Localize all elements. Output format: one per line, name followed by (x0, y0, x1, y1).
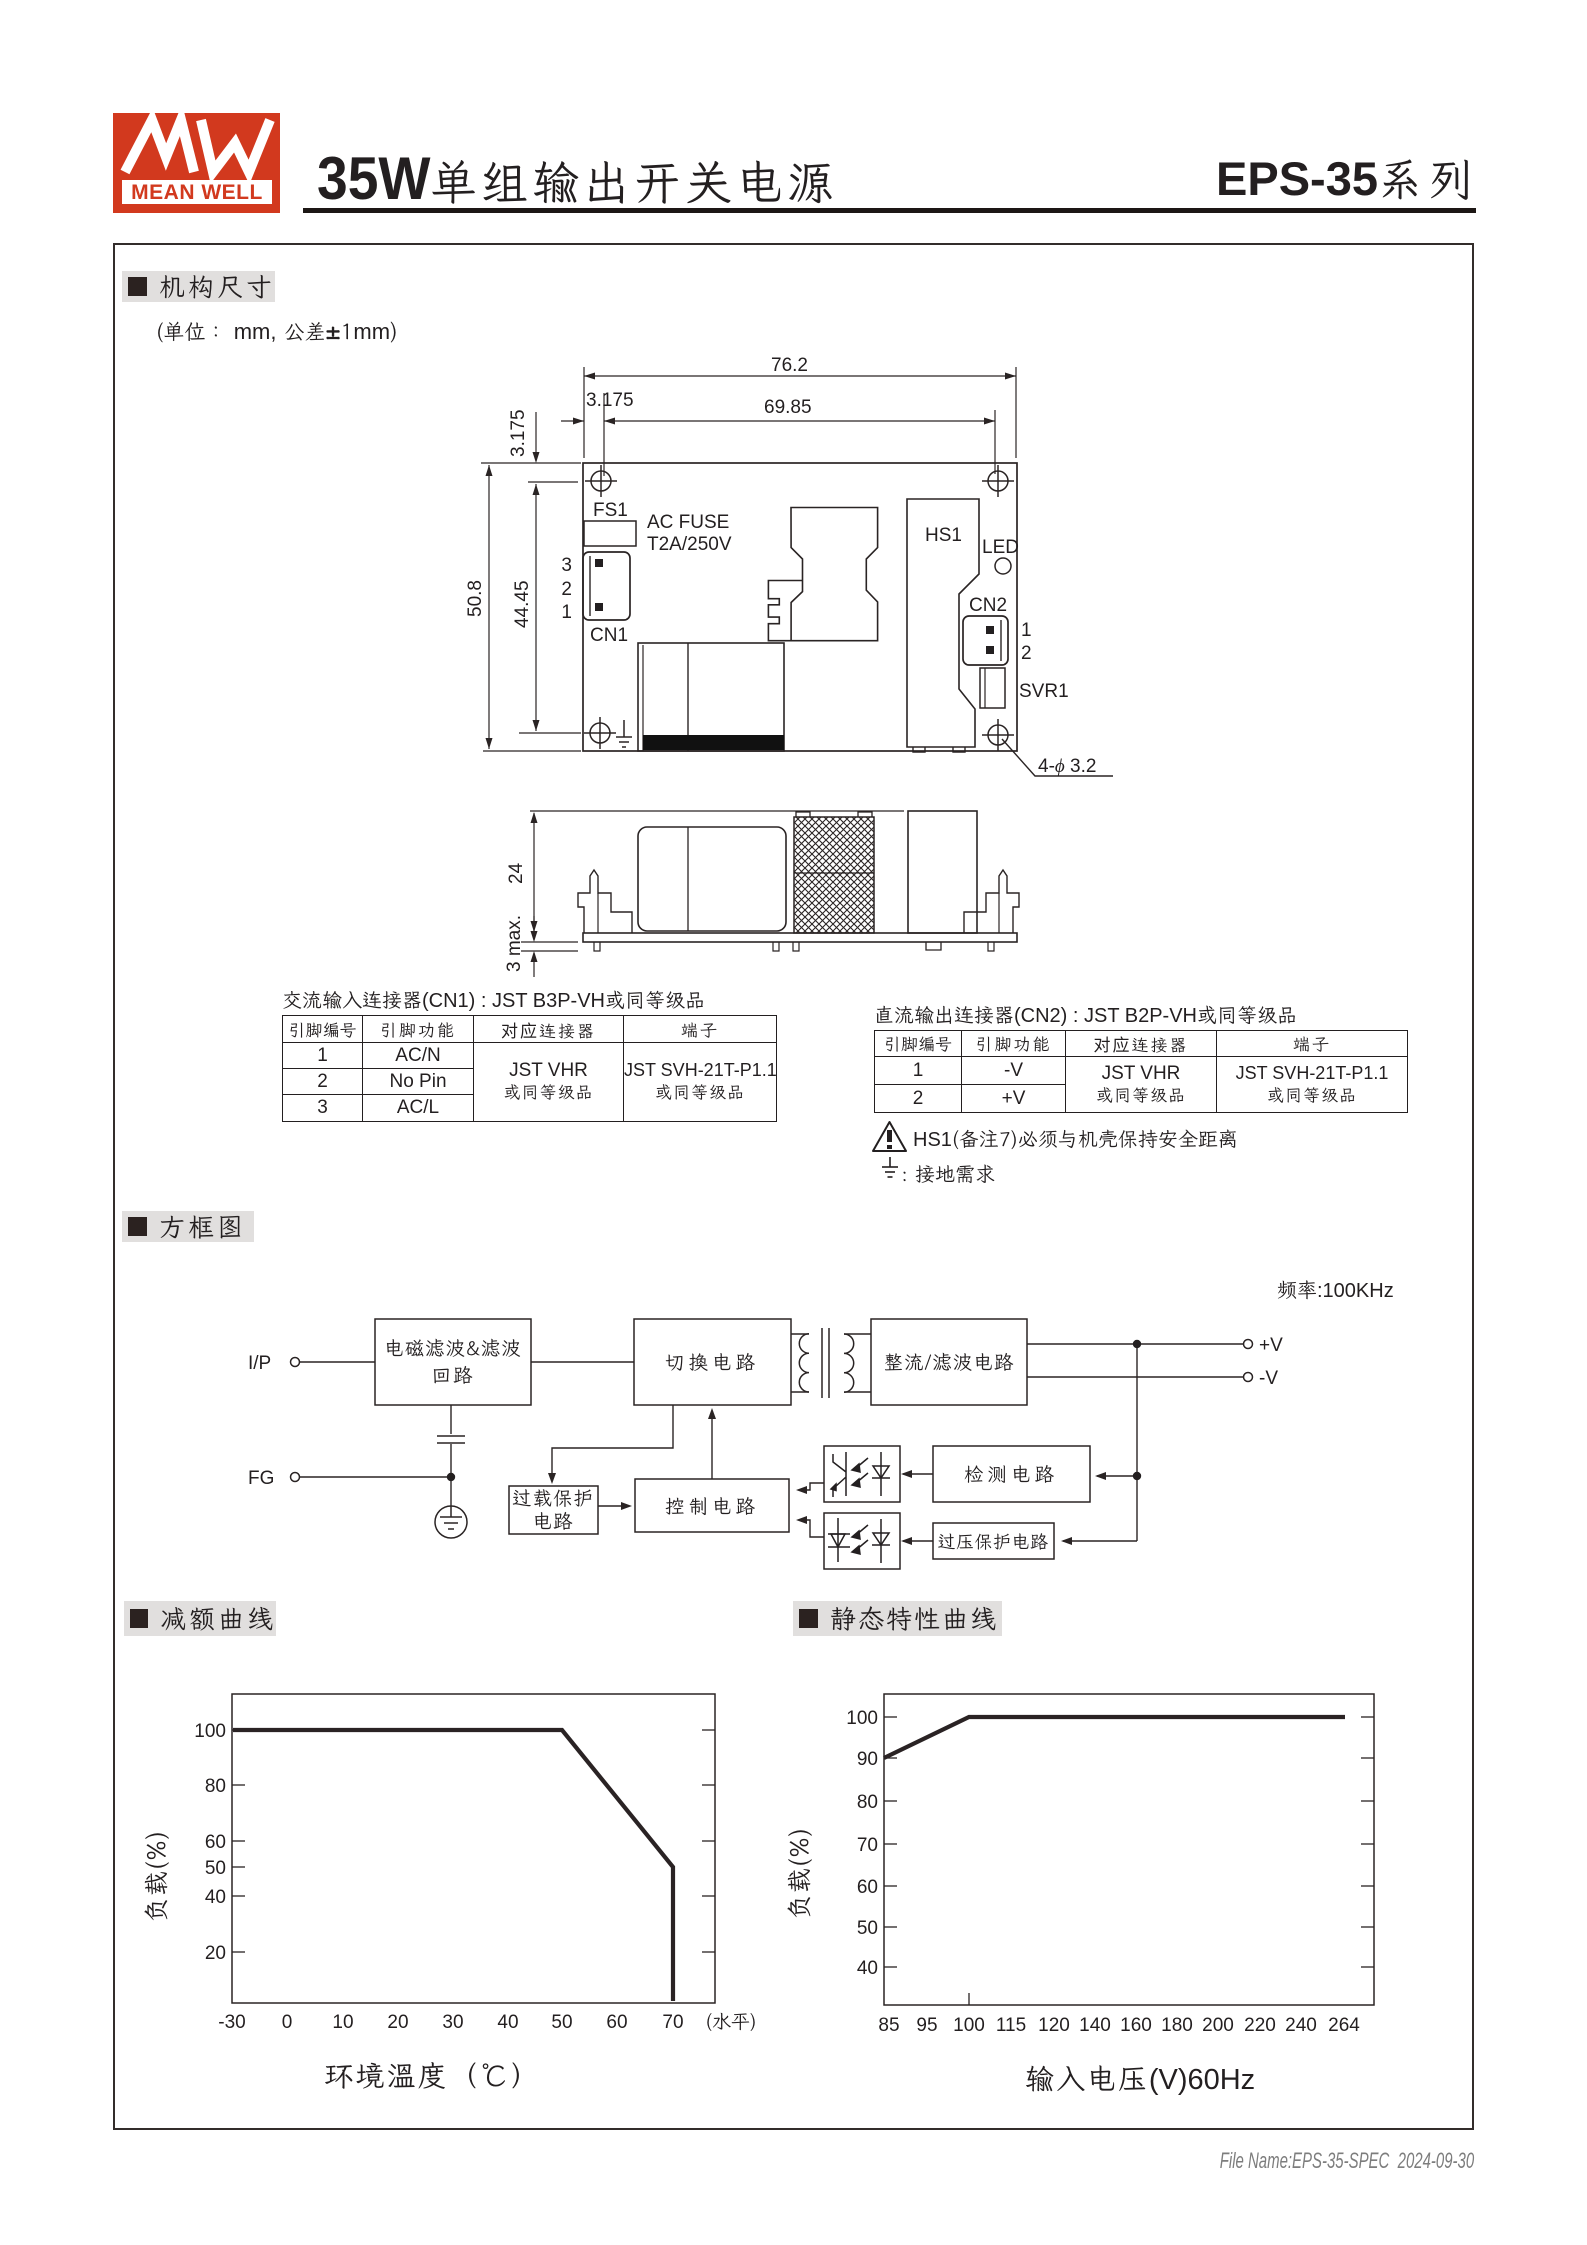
svg-text:回路: 回路 (431, 1362, 474, 1388)
svg-text:220: 220 (1244, 2015, 1276, 2036)
svg-text:10: 10 (332, 2012, 353, 2033)
svg-text:69.85: 69.85 (764, 397, 812, 418)
svg-text:60: 60 (857, 1877, 878, 1898)
svg-text:过压保护电路: 过压保护电路 (938, 1530, 1049, 1554)
svg-text:I/P: I/P (248, 1353, 271, 1374)
svg-text:0: 0 (282, 2012, 293, 2033)
svg-text:70: 70 (662, 2012, 683, 2033)
svg-text:100: 100 (953, 2015, 985, 2036)
svg-text:2: 2 (561, 579, 572, 600)
svg-text:40: 40 (857, 1958, 878, 1979)
svg-text:20: 20 (387, 2012, 408, 2033)
svg-text:50: 50 (857, 1918, 878, 1939)
svg-text:频率:100KHz: 频率:100KHz (1277, 1276, 1394, 1303)
svg-text:50.8: 50.8 (465, 580, 486, 617)
svg-text:20: 20 (205, 1943, 226, 1964)
svg-text:3: 3 (561, 555, 572, 576)
svg-text:115: 115 (996, 2015, 1026, 2036)
svg-text:4-ϕ 3.2: 4-ϕ 3.2 (1038, 756, 1096, 777)
svg-text:100: 100 (846, 1708, 878, 1729)
svg-text:240: 240 (1285, 2015, 1317, 2036)
svg-text:24: 24 (506, 862, 527, 884)
svg-text:95: 95 (916, 2015, 937, 2036)
svg-text:CN1: CN1 (590, 625, 628, 646)
svg-text:30: 30 (442, 2012, 463, 2033)
svg-text:AC FUSE: AC FUSE (647, 512, 729, 533)
svg-text:LED: LED (982, 537, 1019, 558)
svg-text:+V: +V (1259, 1335, 1283, 1356)
svg-text:140: 140 (1079, 2015, 1111, 2036)
svg-text:50: 50 (551, 2012, 572, 2033)
svg-text:整流/滤波电路: 整流/滤波电路 (884, 1349, 1015, 1375)
svg-text:SVR1: SVR1 (1019, 681, 1069, 702)
svg-text:FG: FG (248, 1468, 274, 1489)
svg-text:环境温度（℃）: 环境温度（℃） (324, 2057, 541, 2095)
svg-text:70: 70 (857, 1835, 878, 1856)
svg-text:76.2: 76.2 (771, 355, 808, 376)
svg-text:1: 1 (561, 602, 572, 623)
svg-text:264: 264 (1328, 2015, 1360, 2036)
svg-text:输入电压(V)60Hz: 输入电压(V)60Hz (1025, 2060, 1255, 2098)
svg-text:1: 1 (1021, 620, 1032, 641)
svg-text:40: 40 (497, 2012, 518, 2033)
svg-text:40: 40 (205, 1887, 226, 1908)
svg-text:电路: 电路 (532, 1508, 573, 1534)
svg-text:2: 2 (1021, 643, 1032, 664)
svg-text:检测电路: 检测电路 (964, 1461, 1058, 1487)
svg-text:180: 180 (1161, 2015, 1193, 2036)
svg-text:3.175: 3.175 (586, 390, 634, 411)
svg-text:80: 80 (857, 1792, 878, 1813)
svg-text:T2A/250V: T2A/250V (647, 534, 732, 555)
svg-text:3 max.: 3 max. (504, 915, 525, 972)
svg-text:-30: -30 (218, 2012, 245, 2033)
svg-text:-V: -V (1259, 1368, 1278, 1389)
svg-text:60: 60 (606, 2012, 627, 2033)
svg-text:120: 120 (1038, 2015, 1070, 2036)
svg-text:(水平): (水平) (705, 2009, 756, 2034)
svg-text:控制电路: 控制电路 (665, 1493, 759, 1519)
svg-text:50: 50 (205, 1858, 226, 1879)
svg-text:80: 80 (205, 1776, 226, 1797)
svg-text:切换电路: 切换电路 (665, 1349, 759, 1375)
svg-text:44.45: 44.45 (512, 580, 533, 628)
svg-text:CN2: CN2 (969, 595, 1007, 616)
svg-text:85: 85 (878, 2015, 899, 2036)
svg-text:60: 60 (205, 1832, 226, 1853)
svg-text:负载(%): 负载(%) (140, 1830, 173, 1923)
svg-text:100: 100 (194, 1721, 226, 1742)
svg-text:160: 160 (1120, 2015, 1152, 2036)
svg-text:3.175: 3.175 (508, 409, 529, 457)
svg-text:HS1: HS1 (925, 525, 962, 546)
svg-text:电磁滤波&滤波: 电磁滤波&滤波 (384, 1335, 522, 1361)
svg-text:90: 90 (857, 1749, 878, 1770)
svg-text:负载(%): 负载(%) (783, 1827, 816, 1920)
svg-text:FS1: FS1 (593, 500, 628, 521)
svg-text:200: 200 (1202, 2015, 1234, 2036)
